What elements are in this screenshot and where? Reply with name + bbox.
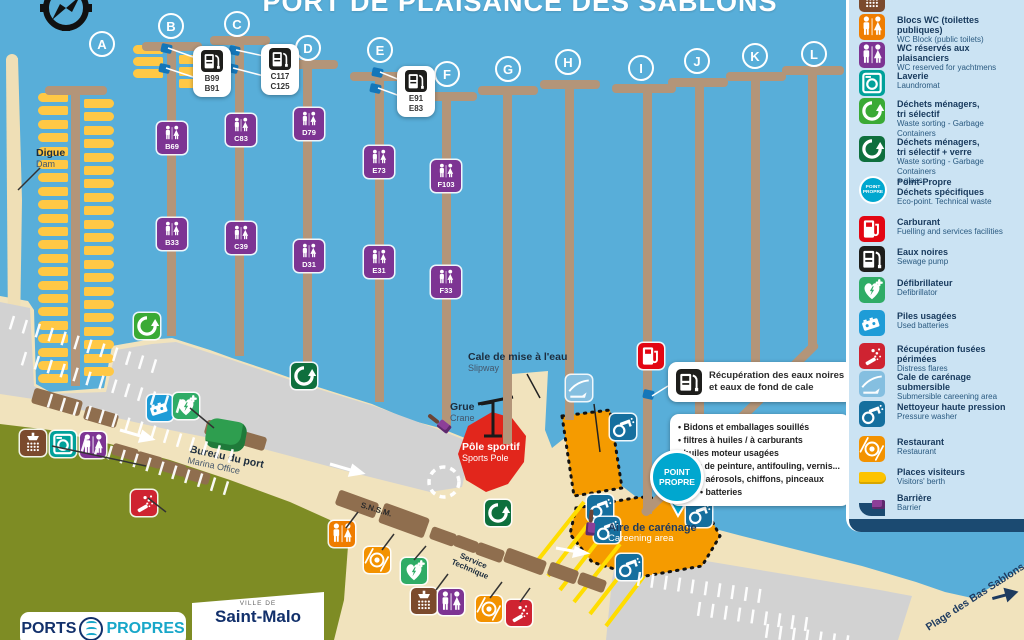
wc-marker-E31: E31 [364,246,394,278]
shower-icon [411,588,437,614]
visitor-berth-boat [38,254,68,263]
defib-icon [401,558,427,584]
visitor-berth-boat [38,227,68,236]
legend-item-text: CarburantFuelling and services facilitie… [897,217,1021,237]
legend-label-en: Visitors' berth [897,477,1021,487]
pontoon-letter-J: J [684,48,710,74]
legend-item-text: Places visiteursVisitors' berth [897,467,1021,487]
legend-item-text: RestaurantRestaurant [897,437,1021,457]
visitor-berth-boat [84,300,114,309]
waste-list: Bidons et emballages souillésfiltres à h… [678,421,844,499]
pontoon-K-stem [751,72,760,402]
wc-marker-F33: F33 [431,266,461,298]
legend-item-text: Nettoyeur haute pressionPressure washer [897,402,1021,422]
wc-icon [859,14,885,40]
legend-label-fr: tri sélectif + verre [897,147,1021,157]
waste-list-item: Bidons et emballages souillés [678,421,844,434]
wc-marker-C39: C39 [226,222,256,254]
recycle2-icon [291,363,317,389]
legend-label-fr: WC réservés aux plaisanciers [897,43,1021,63]
visitor-berth-boat [84,246,114,255]
pontoon-A-stem [71,86,80,386]
legend-item-text: Blocs WC (toilettes publiques)WC Block (… [897,15,1021,45]
compass-icon [40,0,92,31]
wc-marker-label: E73 [364,167,394,175]
berth-service-callout: C117C125 [261,44,299,95]
fuel-icon [859,216,885,242]
legend-label-fr: Déchets ménagers, [897,99,1021,109]
pontoon-letter-A: A [89,31,115,57]
flares-icon [131,490,157,516]
restaurant-icon [364,547,390,573]
label-dike: Digue Dam [36,148,65,169]
wc-marker-D31: D31 [294,240,324,272]
sewage-pump-icon [201,50,223,72]
visitor-berth-boat [38,173,68,182]
eco-point-icon: POINTPROPRE [859,176,887,204]
berth-number: C117 [263,72,297,82]
wc-marker-label: D31 [294,261,324,269]
legend-label-fr: Restaurant [897,437,1021,447]
berth-service-callout: E91E83 [397,66,435,117]
legend-label-en: Used batteries [897,321,1021,331]
legend-label-en: Waste sorting - Garbage Containers [897,157,1021,176]
visitor-berth-boat [38,294,68,303]
wc-marker-label: B69 [157,143,187,151]
shower-icon [20,430,46,456]
legend-label-fr: Cale de carénage submersible [897,372,1021,392]
wc-marker-D79: D79 [294,108,324,140]
barrier-icon [859,500,885,509]
legend-label-en: Fuelling and services facilities [897,227,1021,237]
visitor-berth-boat [38,374,68,383]
pontoon-letter-L: L [801,41,827,67]
visitor-berth-boat [84,153,114,162]
visitor-berth-boat [84,273,114,282]
legend-item-text: Déchets ménagers,tri sélectifWaste sorti… [897,99,1021,138]
wc-icon [438,589,464,615]
visitor-berth-boat [84,340,114,349]
legend-label-fr: Places visiteurs [897,467,1021,477]
legend-item-text: WC réservés aux plaisanciersWC reserved … [897,43,1021,73]
legend-label-en: Pressure washer [897,412,1021,422]
legend-label-en: Defibrillator [897,288,1021,298]
legend-item-text: Piles usagéesUsed batteries [897,311,1021,331]
quay-building [547,561,580,584]
sewage-icon [859,246,885,272]
legend-label-fr: Laverie [897,71,1021,81]
wc-marker-B69: B69 [157,122,187,154]
waves-icon [79,617,103,640]
pontoon-letter-G: G [495,56,521,82]
legend-item-text: BarrièreBarrier [897,493,1021,513]
wc-marker-label: E31 [364,267,394,275]
legend-label-fr: Barrière [897,493,1021,503]
visitor-berth-boat [38,267,68,276]
pontoon-letter-K: K [742,43,768,69]
berth-number: B91 [195,84,229,94]
washer-icon [616,554,642,580]
map-title: PORT DE PLAISANCE DES SABLONS [180,0,860,18]
visitor-berth-boat [38,187,68,196]
quay-building [577,572,608,594]
legend-label-fr: Point-Propre [897,177,1021,187]
quay-building [31,387,83,416]
visitor-berth-boat [38,361,68,370]
callout-text: Récupération des eaux noires et eaux de … [709,370,846,394]
legend-label-en: Laundromat [897,81,1021,91]
defib-icon [859,277,885,303]
waste-list-item: batteries [700,486,844,499]
visitor-berth-boat [38,240,68,249]
shower-icon [859,0,885,12]
visitor-berth-boat [84,260,114,269]
eco-point-badge: POINT PROPRE [650,450,704,504]
legend-label-fr: Déchets spécifiques [897,187,1021,197]
saint-malo-logo: VILLE DE Saint-Malo [192,592,324,640]
visitor-berth-boat [38,348,68,357]
visitor-berth-boat [38,321,68,330]
visitor-berth-boat [84,193,114,202]
washer-icon [859,401,885,427]
legend-item-text: Récupération fusées périméesDistress fla… [897,344,1021,374]
visitor-berth-boat [84,99,114,108]
visitor-berth-boat [38,120,68,129]
legend-label-fr: tri sélectif [897,109,1021,119]
legend-label-en: Sewage pump [897,257,1021,267]
ports-propres-logo: PORTS PROPRES [20,612,186,640]
quay-building [503,547,548,575]
visitor-berth-boat [84,112,114,121]
visitor-berth-boat [38,281,68,290]
label-slipway: Cale de mise à l'eau Slipway [468,352,567,373]
visitor-berth-boat [84,220,114,229]
legend-label-fr: Blocs WC (toilettes publiques) [897,15,1021,35]
pontoon-letter-E: E [367,37,393,63]
label-crane: Grue Crane [450,402,475,423]
wc-marker-label: C83 [226,135,256,143]
restaurant-icon [859,436,885,462]
waste-list-item: filtres à huiles / à carburants [678,434,844,447]
slipway-icon [859,371,885,397]
pontoon-G-stem [503,86,512,444]
flares-icon [859,343,885,369]
laundry-icon [859,70,885,96]
legend-label-fr: Nettoyeur haute pression [897,402,1021,412]
wc-marker-label: C39 [226,243,256,251]
recycle-icon [134,313,160,339]
visitor-berth-boat [84,179,114,188]
pontoon-E-stem [375,72,384,402]
visitor-berth-boat [84,233,114,242]
wc-marker-label: F103 [431,181,461,189]
legend-label-fr: Défibrillateur [897,278,1021,288]
visitor-berth-boat [84,166,114,175]
legend-label-fr: Récupération fusées périmées [897,344,1021,364]
flares-icon [506,600,532,626]
legend-label-en: Restaurant [897,447,1021,457]
visitor-berth-boat [38,307,68,316]
pontoon-B-stem [167,42,176,336]
visitor-berth-boat [38,106,68,115]
wc-marker-C83: C83 [226,114,256,146]
legend-bottom-bar [849,519,1024,532]
legend-item-text: Cale de carénage submersibleSubmersible … [897,372,1021,402]
legend-item-text: DéfibrillateurDefibrillator [897,278,1021,298]
wc-icon [859,42,885,68]
pontoon-letter-I: I [628,55,654,81]
legend-item-text: Eaux noiresSewage pump [897,247,1021,267]
legend-label-fr: Carburant [897,217,1021,227]
restaurant-icon [476,596,502,622]
legend-label-en: Eco-point. Technical waste [897,197,1021,207]
pontoon-C-stem [235,36,244,356]
pontoon-J-stem [695,78,704,462]
berth-number: B99 [195,74,229,84]
visitor-berth-boat [38,200,68,209]
wc-icon [80,432,106,458]
visitor-berth-boat [38,133,68,142]
legend-label-fr: Eaux noires [897,247,1021,257]
pontoon-I-stem [643,84,652,514]
marina-map: ABCDEFGHIJKLB69C83D79E73F103B33C39D31E31… [0,0,1024,640]
sewage-pump-icon [676,369,702,395]
label-sports-pole: Pôle sportif Sports Pole [462,442,520,463]
visitor-berth-boat [84,367,114,376]
blackwater-berth-marker [369,83,382,94]
battery-icon [859,310,885,336]
wc-marker-E73: E73 [364,146,394,178]
visitor-berth-boat [84,126,114,135]
wc-marker-F103: F103 [431,160,461,192]
fuel-icon [638,343,664,369]
legend-panel: SanitaryBlocs WC (toilettes publiques)WC… [846,0,1024,532]
wc-marker-label: D79 [294,129,324,137]
sewage-pump-icon [405,70,427,92]
waste-list-item: huiles moteur usagées [678,447,844,460]
recycle-icon [859,136,885,162]
legend-label-fr: Déchets ménagers, [897,137,1021,147]
berth-number: C125 [263,82,297,92]
wc-marker-B33: B33 [157,218,187,250]
visitor-berth-boat [38,214,68,223]
laundry-icon [50,431,76,457]
legend-item-text: Point-PropreDéchets spécifiquesEco-point… [897,177,1021,207]
berth-number: E83 [399,104,433,114]
legend-label-fr: Piles usagées [897,311,1021,321]
label-beach: Plage des Bas Sablons [924,562,1024,634]
visitor-berth-icon [859,472,886,484]
legend-label-en: Waste sorting - Garbage Containers [897,119,1021,138]
wc-marker-label: F33 [431,287,461,295]
battery-icon [147,395,173,421]
pontoon-letter-F: F [434,61,460,87]
callout-blackwater-recovery: Récupération des eaux noires et eaux de … [668,362,854,402]
legend-item-text: LaverieLaundromat [897,71,1021,91]
recycle2-icon [485,500,511,526]
visitor-berth-boat [84,327,114,336]
visitor-berth-boat [84,313,114,322]
wc-marker-label: B33 [157,239,187,247]
washer-icon [610,414,636,440]
pontoon-L-stem [808,66,817,346]
visitor-berth-boat [84,206,114,215]
pontoon-F-stem [442,92,451,426]
legend-label-en: Submersible careening area [897,392,1021,402]
defib-icon [173,393,199,419]
visitor-berth-boat [84,354,114,363]
visitor-berth-boat [38,334,68,343]
pontoon-letter-H: H [555,49,581,75]
label-careening-area: Aire de carénage Careening area [608,522,697,545]
sewage-pump-icon [269,48,291,70]
wcpub-icon [329,521,355,547]
recycle-icon [859,98,885,124]
legend-label-en: Barrier [897,503,1021,513]
quay-building [83,406,120,429]
berth-number: E91 [399,94,433,104]
berth-service-callout: B99B91 [193,46,231,97]
slipway-icon [566,375,592,401]
visitor-berth-boat [84,287,114,296]
visitor-berth-boat [84,139,114,148]
waste-list-item: aérosols, chiffons, pinceaux [700,473,844,486]
